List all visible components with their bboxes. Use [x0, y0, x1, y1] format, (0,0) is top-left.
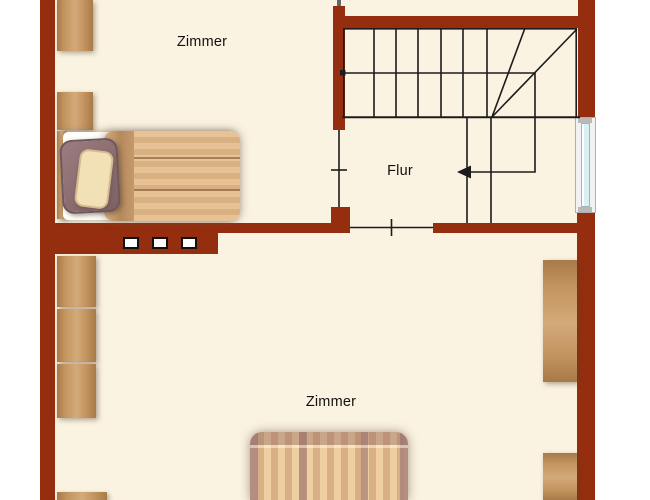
wall-opening-square-1 [123, 237, 139, 249]
cabinet-bottom-right [543, 453, 577, 500]
bed2-duvet [250, 432, 408, 500]
wardrobe-top-1 [57, 0, 93, 51]
wardrobe-bottom-seg-1 [57, 256, 96, 307]
wall-right-upper [578, 0, 595, 118]
bed1-pillow-front [74, 148, 115, 210]
wall-right-lower [577, 212, 595, 500]
wardrobe-top-2 [57, 92, 93, 130]
floor-plan: Zimmer Flur Zimmer [0, 0, 650, 500]
window-frame-bottom [578, 207, 592, 212]
bed1-duvet-stripes [134, 131, 240, 221]
wardrobe-bottom-seg-3 [57, 364, 96, 418]
wardrobe-bottom-seg-2 [57, 309, 96, 362]
wall-opening-square-3 [181, 237, 197, 249]
wall-opening-square-2 [152, 237, 168, 249]
room-label-zimmer-bottom: Zimmer [271, 394, 391, 410]
window-glass [581, 123, 590, 207]
room-label-zimmer-top: Zimmer [142, 34, 262, 50]
bed1-duvet [104, 131, 240, 221]
desk-right [543, 260, 577, 382]
wall-flur-south [433, 223, 578, 233]
wall-stair-north [333, 16, 595, 28]
cabinet-bottom-left [57, 492, 107, 500]
wall-junction-pillar [331, 207, 350, 233]
room-label-flur: Flur [360, 163, 440, 179]
